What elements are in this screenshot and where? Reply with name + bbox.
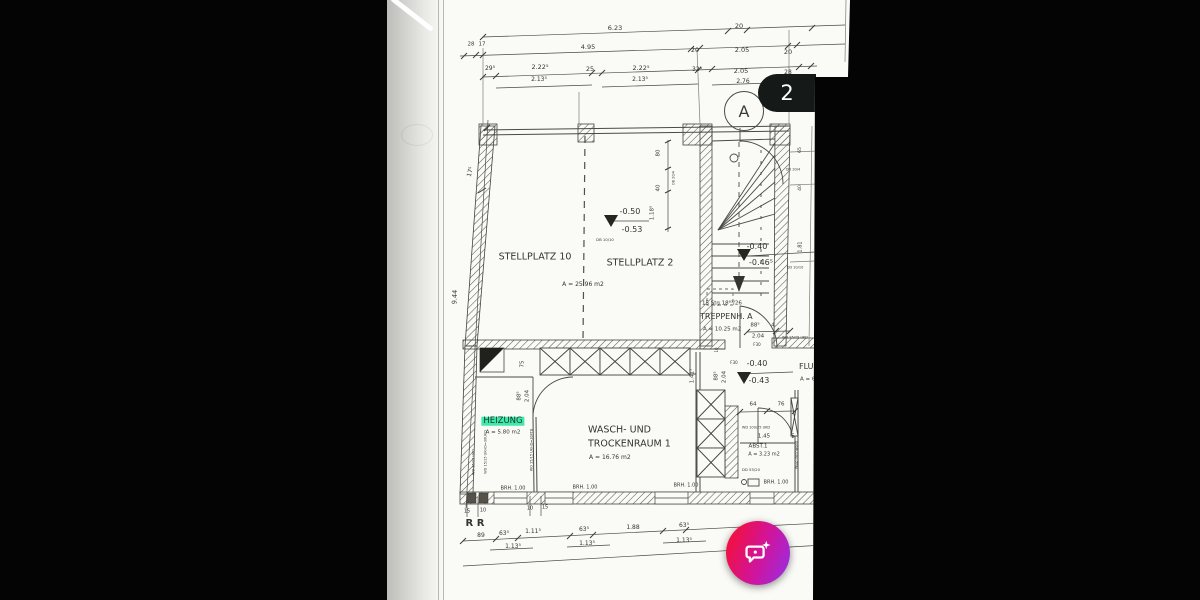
- plan-text: 80: [656, 150, 662, 157]
- plan-text: 63⁵: [499, 531, 509, 537]
- plan-text: 1.41⁵: [690, 369, 696, 383]
- plan-text: 1.13⁵: [676, 538, 692, 544]
- level-value: -0.40: [747, 243, 768, 251]
- plan-text: 4.95: [581, 44, 595, 51]
- plan-text: 1.18⁵: [650, 206, 656, 220]
- plan-text: DB 20/4: [672, 171, 676, 185]
- plan-text: 40: [656, 185, 662, 192]
- plan-text: 64: [750, 402, 757, 408]
- plan-text: A = 10.25 m2: [703, 327, 741, 333]
- room-label-abst-1: ABST.1: [749, 444, 768, 450]
- plan-text: 20: [784, 49, 792, 56]
- plan-text: 75: [520, 361, 526, 368]
- plan-text: DD 20/4: [786, 168, 800, 172]
- room-label-wasch-und-trockenraum: TROCKENRAUM 1: [588, 439, 671, 449]
- plan-text: F30: [730, 361, 737, 365]
- plan-text: 88⁵: [517, 391, 523, 400]
- plan-text: 65: [799, 147, 804, 153]
- plan-text: 4: [771, 323, 775, 329]
- plan-text: WD 25/25 UKD: [782, 336, 808, 340]
- level-value: -0.53: [622, 226, 643, 234]
- plan-text: 63⁵: [679, 523, 689, 529]
- plan-text: 2.05: [734, 68, 748, 75]
- page-number-badge: 2: [758, 74, 816, 112]
- plan-text: 2.13⁵: [632, 77, 648, 83]
- plan-text: A = 3.23 m2: [748, 453, 780, 458]
- plan-text: 15: [464, 510, 470, 515]
- plan-text: 1.13⁵: [505, 544, 521, 550]
- plan-text: A = 16.76 m2: [589, 455, 631, 461]
- plan-text: WD 15/15 UKHD=30UKD: [484, 430, 488, 474]
- plan-text: 5: [791, 434, 795, 440]
- stair-count-note: 15 Stg 18⁸³/26: [702, 301, 742, 307]
- plan-text: 2.04: [525, 390, 531, 402]
- plan-text: 2.22⁵: [531, 64, 548, 71]
- handwritten-rr-mark: R R: [466, 519, 485, 529]
- level-value: -0.40: [747, 360, 768, 368]
- room-label-wasch-und-trockenraum: WASCH- UND: [588, 425, 651, 435]
- plan-text: BRH. 1.00: [674, 484, 699, 489]
- plan-text: WBZ-Trennwand: [795, 441, 799, 469]
- plan-text: 88⁵: [714, 371, 720, 380]
- plan-text: 1.88: [626, 525, 639, 531]
- plan-text: 63⁵: [579, 527, 589, 533]
- plan-text: 2.76: [736, 79, 749, 85]
- plan-text: 1.13⁵: [579, 541, 595, 547]
- page-number-text: 2: [780, 81, 793, 105]
- plan-text: DD 10/10: [787, 266, 804, 270]
- plan-text: DB 10/10: [596, 238, 614, 242]
- screenshot-root: 6.232028174.95202.052029⁵2.22⁵252.22⁵32⁵…: [0, 0, 1200, 600]
- plan-text: BRH. 1.00: [764, 481, 789, 486]
- level-value: -0.50: [620, 208, 641, 216]
- plan-text: 2.05: [735, 47, 749, 54]
- plan-text: 2.04: [752, 334, 764, 340]
- plan-text: 10: [715, 347, 719, 352]
- plan-text: A = 6: [800, 377, 815, 383]
- room-label-stellplatz-2: STELLPLATZ 2: [607, 258, 674, 268]
- plan-text: BRH. 1.00: [573, 486, 598, 491]
- plan-text: 1.45: [758, 434, 770, 440]
- plan-text: 89: [477, 533, 485, 539]
- plan-text: 29⁵: [485, 66, 495, 72]
- plan-text: 25: [586, 66, 594, 73]
- plan-text: BRH. 1.00: [501, 487, 526, 492]
- plan-text: 1.81: [799, 241, 804, 252]
- level-value: -0.43: [749, 377, 770, 385]
- plan-text: 10: [480, 509, 486, 514]
- section-marker-letter: A: [739, 102, 750, 121]
- plan-text: WD 100/25 UKD: [742, 426, 770, 430]
- plan-text: 9.44: [451, 290, 458, 305]
- plan-text: A = 25.96 m2: [562, 282, 604, 288]
- plan-text: 2.13⁵: [531, 77, 547, 83]
- plan-text: 10: [527, 507, 533, 512]
- plan-text: 40: [799, 185, 804, 191]
- room-label-treppenhaus-a: TREPPENH. A: [700, 313, 753, 321]
- room-label-flur: FLUR: [799, 363, 819, 371]
- plan-text: 15: [542, 506, 548, 511]
- plan-text: A = 5.80 m2: [486, 430, 521, 436]
- chat-bubble-sparkle-icon: [742, 537, 774, 569]
- plan-text: WD 15/15 UKD: [472, 449, 476, 475]
- plan-text: F30: [753, 343, 760, 347]
- plan-text: 17⁵: [467, 166, 475, 177]
- plan-text: 1.11⁵: [525, 529, 541, 535]
- plan-text: 20: [691, 47, 699, 54]
- room-label-stellplatz-10: STELLPLATZ 10: [499, 252, 572, 262]
- plan-text: WD 15/15 UKHD=30FTB: [530, 429, 534, 472]
- plan-text: 32⁵: [692, 67, 702, 73]
- plan-text: 17: [479, 42, 486, 48]
- chat-fab-button[interactable]: [726, 521, 790, 585]
- plan-text: 20: [735, 23, 743, 30]
- floorplan-scan: 6.232028174.95202.052029⁵2.22⁵252.22⁵32⁵…: [387, 0, 852, 600]
- level-value: -0.46⁵: [749, 259, 773, 267]
- plan-text: DD 55/20: [742, 468, 760, 472]
- plan-text: 2.22⁵: [632, 65, 649, 72]
- plan-text: 2.04: [722, 371, 728, 383]
- room-label-heizung: HEIZUNG: [481, 417, 524, 426]
- plan-text: 28: [468, 42, 475, 48]
- plan-text: 88⁵: [750, 323, 759, 329]
- plan-text: 76: [778, 402, 785, 408]
- plan-text: 6.23: [608, 25, 622, 32]
